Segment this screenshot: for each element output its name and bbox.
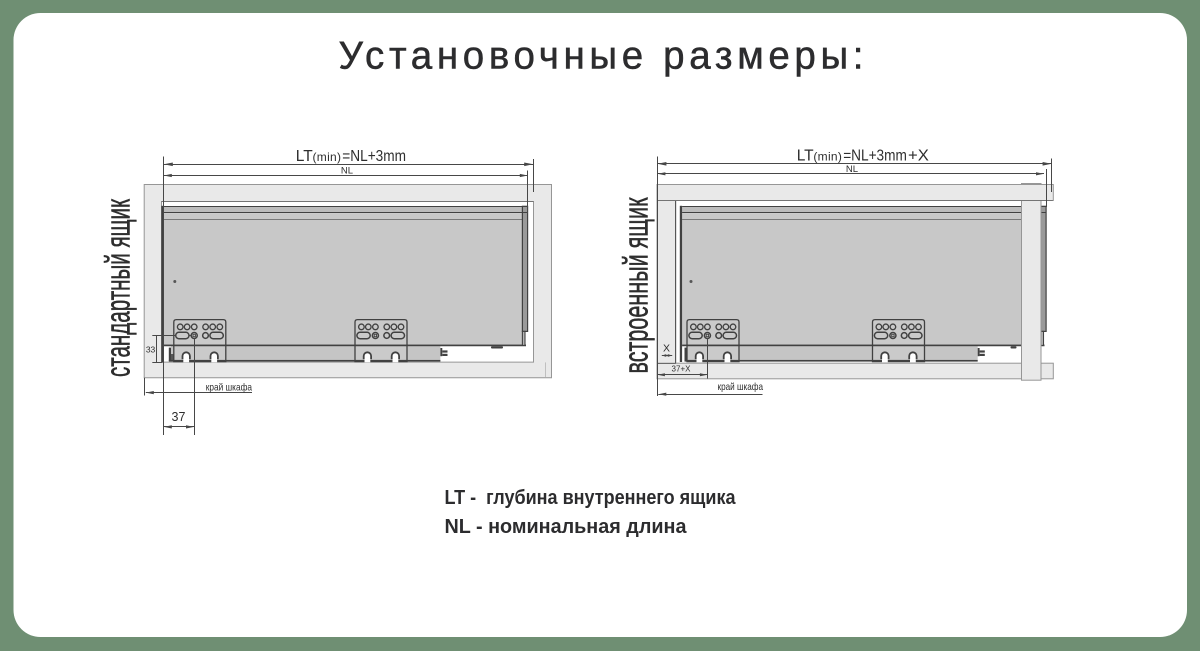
svg-text:37+X: 37+X [672,365,692,374]
svg-text:Установочные размеры:: Установочные размеры: [339,35,864,78]
svg-text:=NL+3mm: =NL+3mm [843,148,907,165]
svg-text:=NL+3mm: =NL+3mm [342,148,406,165]
svg-text:+X: +X [908,148,930,165]
svg-text:(min): (min) [813,150,842,164]
svg-text:37: 37 [172,410,186,424]
svg-text:(min): (min) [313,150,342,164]
svg-text:LT: LT [797,148,814,165]
svg-text:встроенный ящик: встроенный ящик [618,197,656,374]
svg-text:NL: NL [341,166,353,177]
svg-text:LT: LT [296,148,313,165]
svg-text:33: 33 [146,345,156,355]
svg-text:край шкафа: край шкафа [718,381,764,393]
svg-text:NL: NL [846,164,858,175]
svg-text:NL - номинальная длина: NL - номинальная длина [445,515,688,538]
svg-text:LT - глубина внутреннего ящик: LT - глубина внутреннего ящика [445,486,737,509]
svg-text:стандартный ящик: стандартный ящик [100,198,138,377]
svg-text:X: X [663,343,670,355]
svg-text:край шкафа: край шкафа [206,381,252,393]
